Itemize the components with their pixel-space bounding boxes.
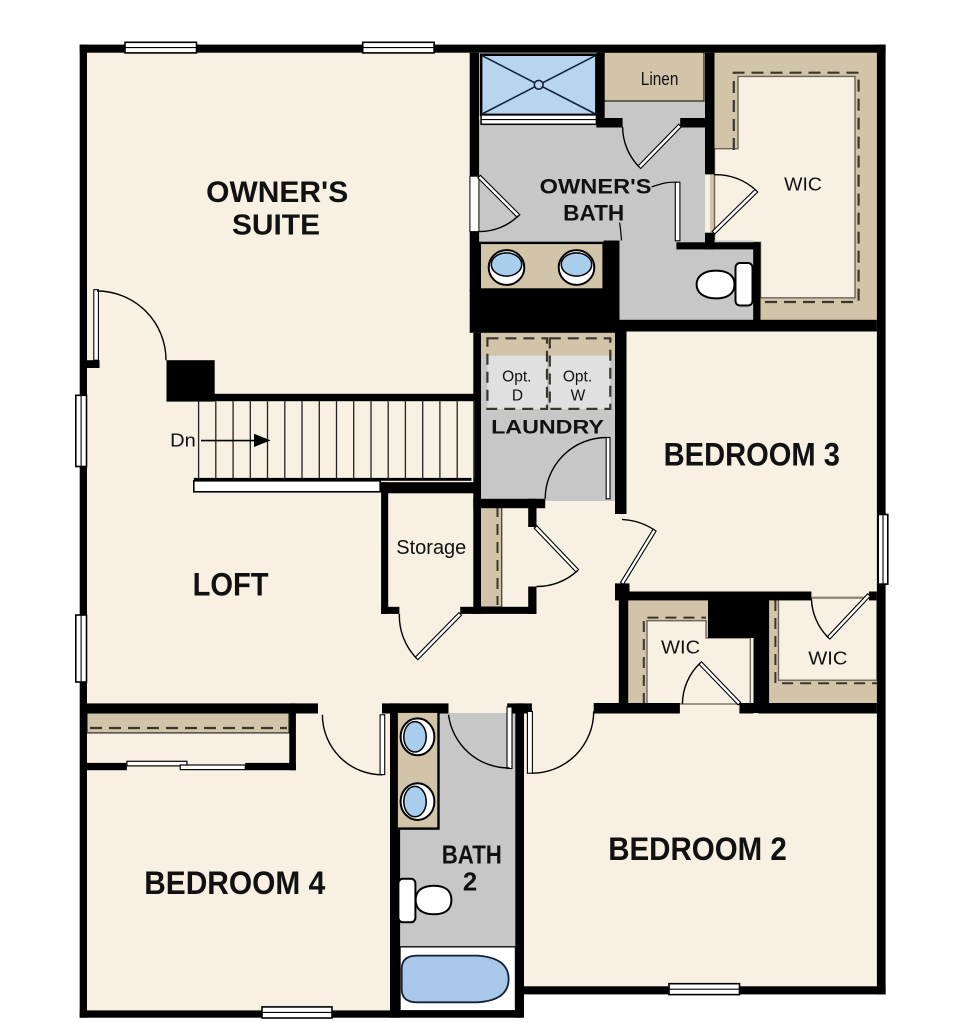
svg-text:BATH: BATH <box>563 201 624 226</box>
svg-text:LAUNDRY: LAUNDRY <box>491 418 604 439</box>
svg-text:BATH: BATH <box>442 842 502 870</box>
svg-text:OWNER'S: OWNER'S <box>540 176 652 199</box>
svg-text:SUITE: SUITE <box>232 210 320 242</box>
svg-text:WIC: WIC <box>784 175 822 195</box>
svg-text:BEDROOM 2: BEDROOM 2 <box>608 831 787 867</box>
svg-text:Opt.: Opt. <box>563 369 592 386</box>
svg-text:OWNER'S: OWNER'S <box>206 176 348 209</box>
svg-text:Dn: Dn <box>170 430 196 450</box>
svg-text:W: W <box>571 388 586 405</box>
svg-text:D: D <box>512 388 523 405</box>
svg-text:LOFT: LOFT <box>193 567 269 603</box>
svg-text:WIC: WIC <box>808 649 847 669</box>
svg-text:Linen: Linen <box>641 68 679 89</box>
svg-text:Opt.: Opt. <box>502 369 531 386</box>
svg-text:WIC: WIC <box>661 638 700 658</box>
svg-text:Storage: Storage <box>396 537 466 559</box>
svg-text:BEDROOM 3: BEDROOM 3 <box>664 437 840 473</box>
svg-text:2: 2 <box>463 869 477 897</box>
svg-text:BEDROOM 4: BEDROOM 4 <box>144 865 325 901</box>
